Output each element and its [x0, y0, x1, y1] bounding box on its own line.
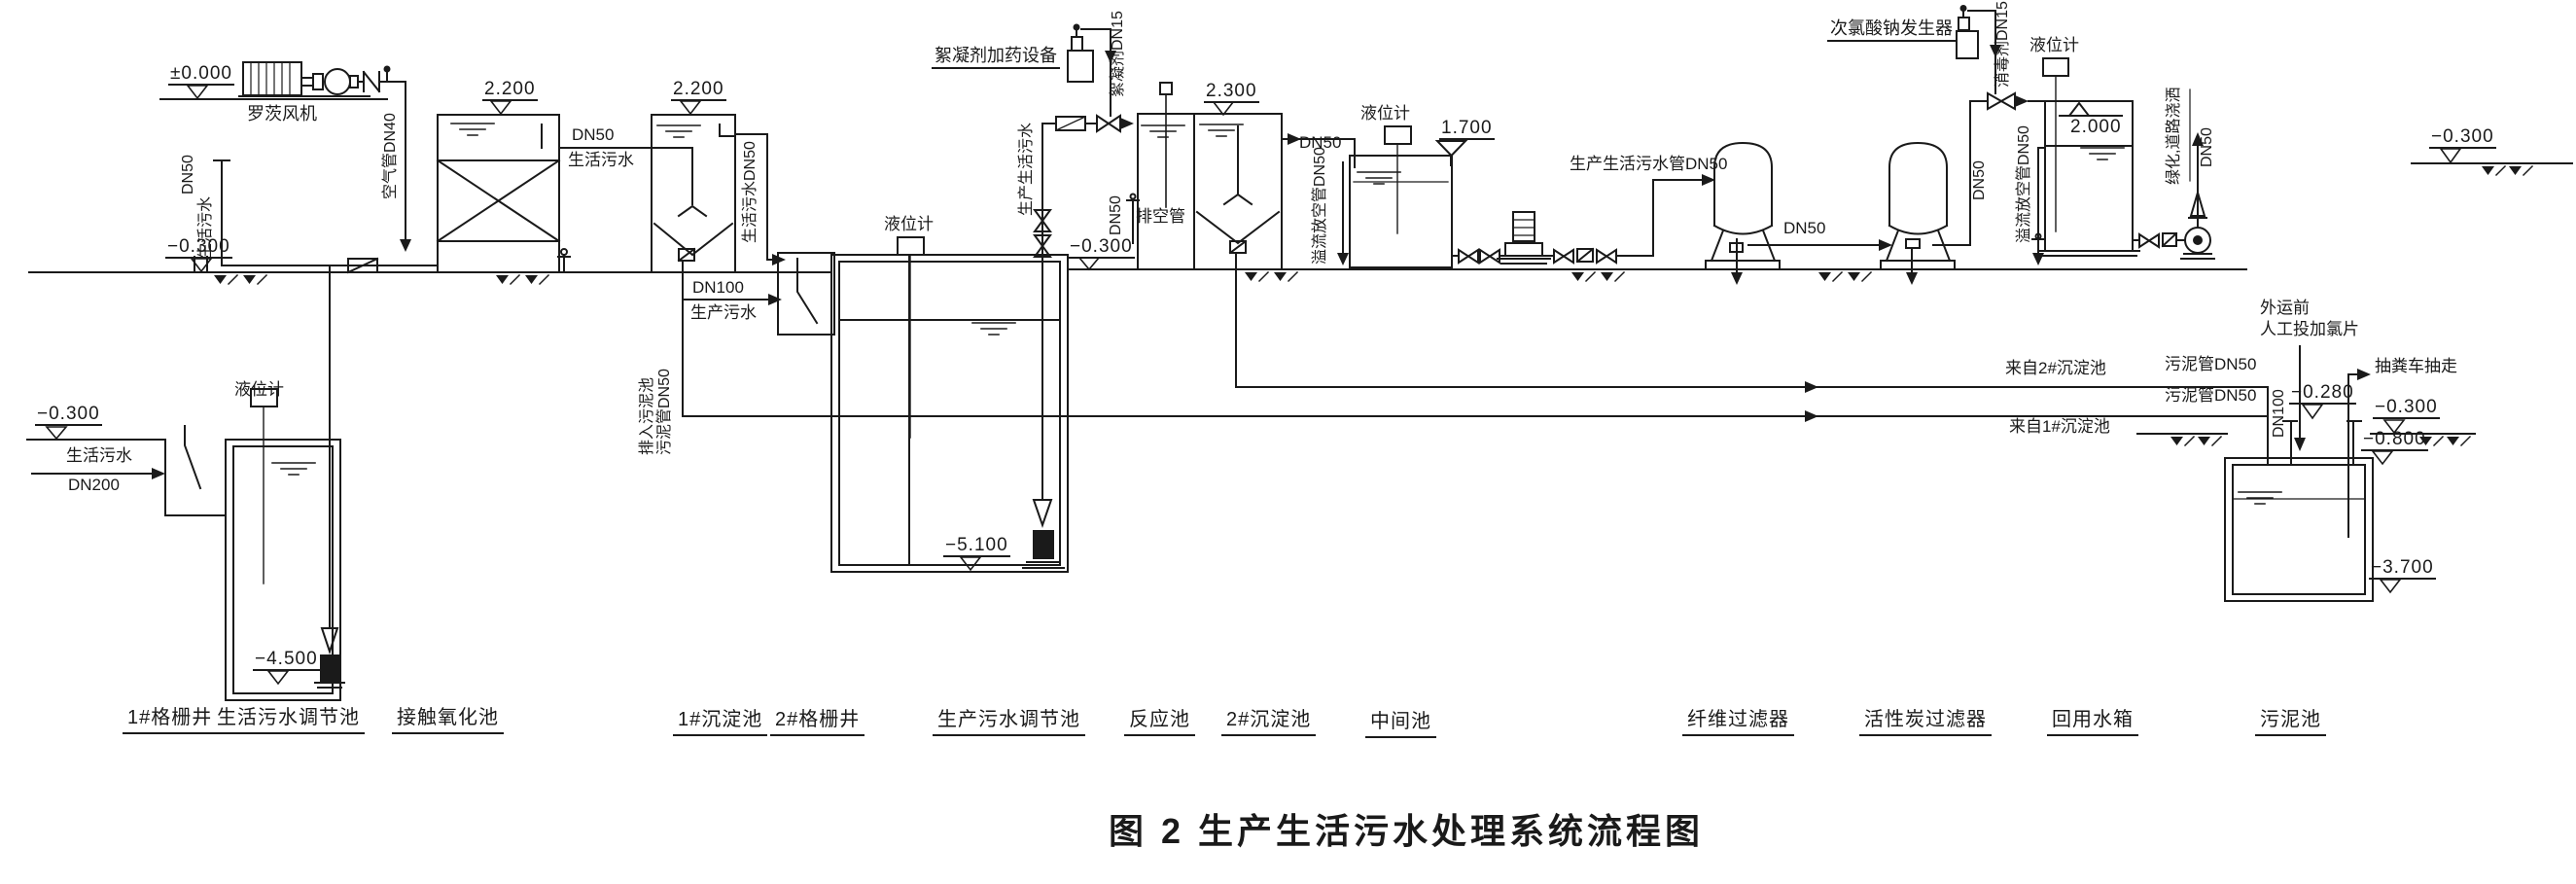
- elev-neg5100: −5.100: [943, 536, 1010, 557]
- elevation-triangles: [47, 86, 2460, 684]
- pipe-label-production-sewage: 生产污水: [690, 304, 757, 322]
- unit-label-sludge-tank: 污泥池: [2255, 710, 2326, 736]
- pipe-label-domestic-ox-sed: 生活污水: [568, 152, 634, 169]
- elev-2200-sed1: 2.200: [671, 80, 726, 101]
- unit-label-reaction-tank: 反应池: [1124, 710, 1195, 736]
- note-manual-chlorine: 人工投加氯片: [2260, 321, 2359, 338]
- elev-2000: 2.000: [2068, 118, 2124, 137]
- elev-neg0300-deeptank: −0.300: [1068, 237, 1135, 259]
- note-from-sed1: 来自1#沉淀池: [2009, 418, 2110, 436]
- pipe-label-greening-spray: 绿化,道路浇洒: [2167, 88, 2183, 185]
- label-level-gauge-3: 液位计: [1360, 105, 1410, 123]
- label-level-gauge-1: 液位计: [234, 381, 284, 399]
- pipe-label-domestic-dn50: 生活污水DN50: [743, 141, 759, 243]
- process-flow-diagram: 罗茨风机 絮凝剂加药设备 次氯酸钠发生器 液位计 液位计 液位计 液位计 ±0.…: [0, 0, 2576, 884]
- pipe-label-overflow-reuse: 溢流放空管DN50: [2017, 125, 2033, 243]
- unit-label-contact-oxidation-tank: 接触氧化池: [392, 708, 504, 734]
- pipe-label-drain: 排空管: [1136, 208, 1185, 226]
- pipe-label-dn100-inlet: DN100: [692, 279, 744, 297]
- unit-label-domestic-regulating-tank: 生活污水调节池: [212, 708, 365, 734]
- pipe-label-air-dn40: 空气管DN40: [383, 113, 400, 199]
- elev-neg0300-right: −0.300: [2429, 127, 2496, 149]
- grit-well-2: [778, 253, 834, 335]
- pipe-label-dn50-greening: DN50: [2200, 127, 2216, 167]
- elev-neg0300-sludge: −0.300: [2373, 398, 2440, 419]
- sludge-lines-and-tank: [683, 346, 2373, 601]
- elev-zero: ±0.000: [168, 64, 234, 86]
- filter-vessels: [1706, 93, 2045, 272]
- pipe-label-dn50-riser: DN50: [1972, 160, 1989, 200]
- hypochlorite-generator: [1957, 6, 1995, 93]
- figure-title: 图 2 生产生活污水处理系统流程图: [1109, 813, 1704, 850]
- elev-neg0280: −0.280: [2289, 383, 2356, 405]
- unit-label-grit-well-2: 2#格栅井: [770, 710, 865, 736]
- elev-neg3700: −3.700: [2369, 558, 2436, 580]
- unit-label-carbon-filter: 活性炭过滤器: [1859, 710, 1992, 736]
- unit-label-grit-well-1: 1#格栅井: [123, 708, 217, 734]
- pipe-label-dn50-vessels: DN50: [1783, 220, 1825, 237]
- unit-label-middle-tank: 中间池: [1365, 712, 1436, 738]
- elev-1700: 1.700: [1439, 119, 1495, 140]
- elev-neg0300-inlet: −0.300: [35, 405, 102, 426]
- pipe-label-prod-dom-sewage: 生产生活污水: [1019, 123, 1036, 216]
- pipe-label-to-sludge-tank: 排入污泥池: [640, 377, 656, 455]
- elev-2200-oxidation: 2.200: [482, 80, 538, 101]
- pipe-label-sludge-dn50-b: 污泥管DN50: [2165, 387, 2256, 405]
- pipe-label-dn100-sludge-drop: DN100: [2272, 389, 2288, 438]
- note-from-sed2: 来自2#沉淀池: [2005, 360, 2106, 377]
- unit-label-sed-tank-2: 2#沉淀池: [1221, 710, 1316, 736]
- contact-oxidation-tank: [438, 115, 692, 272]
- label-roots-blower: 罗茨风机: [247, 105, 317, 124]
- flocculant-dosing-device: [1042, 25, 1120, 132]
- flow-arrows: [152, 45, 2371, 479]
- label-level-gauge-2: 液位计: [884, 216, 934, 233]
- unit-label-sed-tank-1: 1#沉淀池: [673, 710, 767, 736]
- label-hypochlorite-generator: 次氯酸钠发生器: [1827, 19, 1956, 42]
- middle-tank: [1343, 126, 1702, 267]
- pipe-label-dn50-drain: DN50: [1109, 195, 1125, 235]
- pipe-label-prod-dom-dn50: 生产生活污水管DN50: [1570, 156, 1727, 173]
- unit-label-fiber-filter: 纤维过滤器: [1682, 710, 1794, 736]
- roots-blower-assembly: [239, 62, 406, 239]
- elev-2300: 2.300: [1204, 82, 1259, 103]
- pipe-label-dn50-ox-sed: DN50: [572, 126, 614, 144]
- label-flocculant-doser: 絮凝剂加药设备: [932, 47, 1060, 69]
- pipe-label-dn50-standpipe: DN50: [181, 155, 197, 194]
- reaction-tank: [1138, 83, 1194, 269]
- pipe-label-domestic-standpipe: 生活污水: [198, 196, 215, 259]
- reuse-water-tank: [2032, 58, 2214, 259]
- pipe-label-flocculant-dn15: 絮凝剂DN15: [1111, 11, 1127, 97]
- grit-well-1: [165, 426, 226, 515]
- pipe-label-overflow-middle: 溢流放空管DN50: [1313, 147, 1329, 265]
- pipe-label-dn200: DN200: [68, 477, 120, 494]
- production-regulating-tank: [831, 124, 1139, 572]
- sedimentation-tank-2: [1194, 114, 1355, 387]
- pipe-label-sludge-dn50-a: 污泥管DN50: [2165, 356, 2256, 373]
- pipe-label-disinfectant-dn15: 消毒剂DN15: [1995, 1, 2012, 88]
- pipe-label-sludge-dn50-v: 污泥管DN50: [657, 369, 674, 455]
- label-level-gauge-4: 液位计: [2029, 37, 2079, 54]
- pipe-label-domestic-inlet: 生活污水: [66, 447, 132, 465]
- elev-neg0800: −0.800: [2361, 430, 2428, 451]
- elev-neg4500: −4.500: [253, 650, 320, 671]
- note-pre-transport: 外运前: [2260, 300, 2310, 317]
- unit-label-production-regulating-tank: 生产污水调节池: [933, 710, 1085, 736]
- note-truck-removal: 抽粪车抽走: [2375, 358, 2457, 375]
- unit-label-reuse-water-tank: 回用水箱: [2047, 710, 2138, 736]
